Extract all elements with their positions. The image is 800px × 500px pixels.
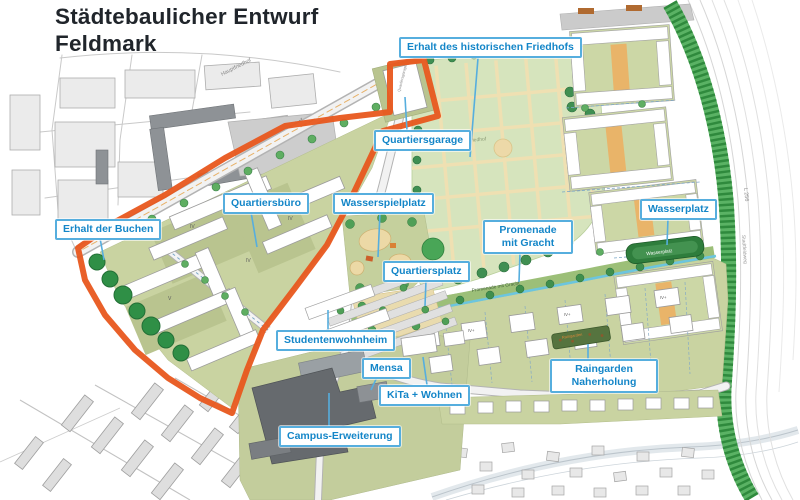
callout-erhalt-friedhof: Erhalt des historischen Friedhofs [399, 37, 582, 58]
svg-text:IV+: IV+ [660, 295, 667, 300]
callout-promenade: Promenade mit Gracht [483, 220, 573, 254]
stadtfeldweg-label: Stadtfeldweg [740, 235, 748, 264]
callout-kita-wohnen: KiTa + Wohnen [379, 385, 470, 406]
svg-text:IV: IV [190, 224, 195, 230]
callout-mensa: Mensa [362, 358, 411, 379]
callout-studentenwohnheim: Studentenwohnheim [276, 330, 395, 351]
callout-quartiersbuero: Quartiersbüro [223, 193, 309, 214]
callout-campus-erweiterung: Campus-Erweiterung [279, 426, 401, 447]
callout-wasserplatz: Wasserplatz [640, 199, 717, 220]
site-plan-map: Planung Betriebshof Hauptfriedhof [0, 0, 800, 500]
row-house-strip-south [438, 390, 722, 424]
svg-text:IV: IV [246, 258, 251, 264]
callout-quartiersplatz: Quartiersplatz [383, 261, 470, 282]
site-plan-page: Planung Betriebshof Hauptfriedhof [0, 0, 800, 500]
svg-text:IV+: IV+ [468, 328, 475, 333]
page-title: Städtebaulicher Entwurf Feldmark [55, 4, 318, 57]
callout-quartiersgarage: Quartiersgarage [374, 130, 471, 151]
svg-text:IV+: IV+ [564, 312, 571, 317]
svg-text:IV: IV [288, 216, 293, 222]
callout-raingarden: Raingarden Naherholung [550, 359, 658, 393]
callout-wasserspielplatz: Wasserspielplatz [333, 193, 434, 214]
road-l256-label: L 256 [742, 188, 749, 202]
callout-erhalt-buchen: Erhalt der Buchen [55, 219, 161, 240]
